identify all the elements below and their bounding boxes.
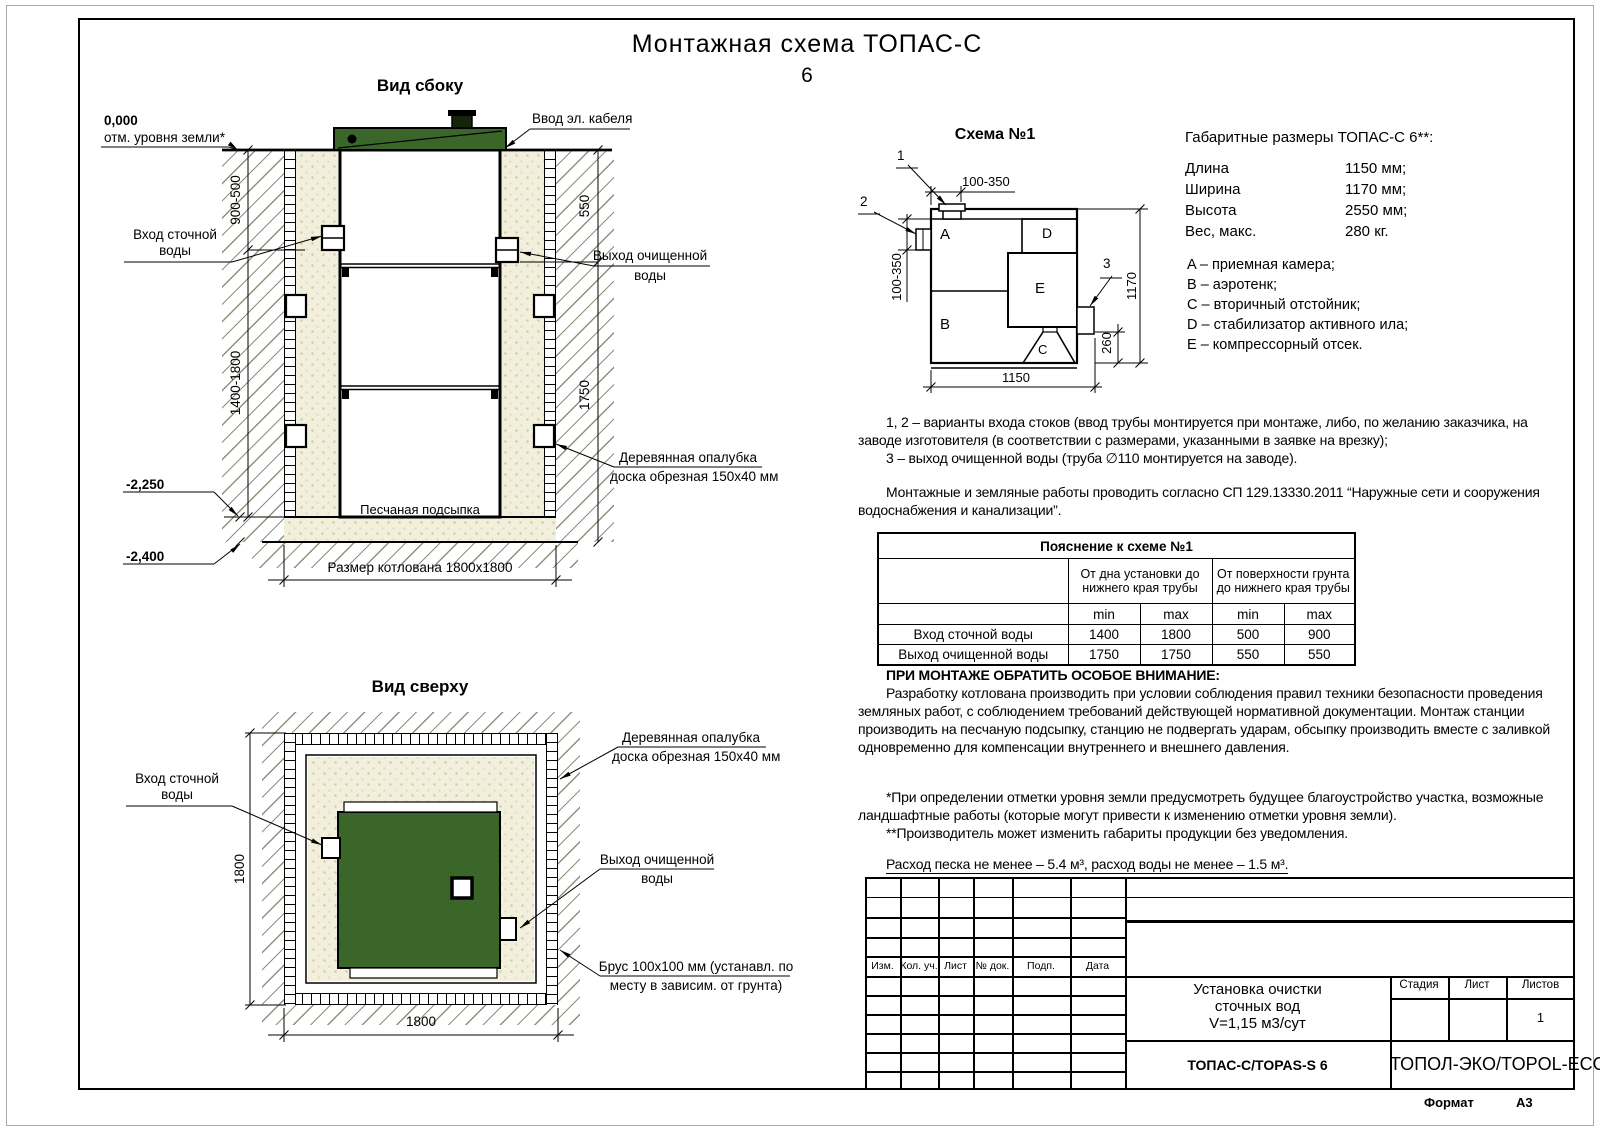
table-group1-header: От дна установки до нижнего края трубы <box>1068 559 1212 604</box>
dim-pit-height: 1800 <box>232 819 248 919</box>
doc-title-line1: Установка очистки <box>1125 981 1390 998</box>
tb-col-koluch: Кол. уч. <box>900 960 938 972</box>
row-value: 550 <box>1212 645 1284 666</box>
dim-row-value: 280 кг. <box>1345 224 1389 240</box>
row-value: 1800 <box>1140 625 1212 645</box>
sand-fill-right <box>500 150 544 517</box>
legend-item: D – стабилизатор активного ила; <box>1187 317 1408 333</box>
note-works-line1: Монтажные и земляные работы проводить со… <box>886 484 1540 500</box>
title-block-line <box>865 1071 1125 1073</box>
dim-row-label: Высота <box>1185 203 1237 219</box>
compartment-d: D <box>1042 225 1052 241</box>
compartment-a: A <box>940 227 950 243</box>
table-corner-cell <box>878 559 1068 604</box>
level-minus-2250: -2,250 <box>126 477 164 493</box>
format-value: А3 <box>1516 1095 1533 1110</box>
group1-line2: нижнего края трубы <box>1069 581 1212 595</box>
attention-line4: одновременно для компенсации внутреннего… <box>858 739 1289 755</box>
model-designation: ТОПАС-С/TOPAS-S 6 <box>1125 1057 1390 1073</box>
inlet-label-line2: воды <box>118 243 232 259</box>
group2-line2: до нижнего края трубы <box>1213 581 1355 595</box>
format-label: Формат <box>1424 1095 1474 1110</box>
title-block-line <box>973 877 975 1090</box>
side-view-title: Вид сбоку <box>320 78 520 94</box>
sand-fill-topview <box>308 757 534 981</box>
compartment-e: E <box>1035 281 1045 297</box>
schema-dim-top: 100-350 <box>962 174 1010 190</box>
row-value: 550 <box>1284 645 1355 666</box>
top-view-title: Вид сверху <box>320 679 520 695</box>
legend-item: A – приемная камера; <box>1187 257 1335 273</box>
max-header: max <box>1284 604 1355 625</box>
title-block-line <box>1390 998 1575 1000</box>
attention-line1: Разработку котлована производить при усл… <box>886 685 1543 701</box>
row-value: 1400 <box>1068 625 1140 645</box>
title-block-line <box>900 877 902 1090</box>
zero-level-mark: 0,000 <box>104 113 138 129</box>
title-block-line <box>865 917 1125 919</box>
max-header: max <box>1140 604 1212 625</box>
dim-row-label: Вес, макс. <box>1185 224 1256 240</box>
consumption-note: Расход песка не менее – 5.4 м³, расход в… <box>886 856 1288 874</box>
formwork-label-line1: Деревянная опалубка <box>610 450 766 466</box>
attention-title: ПРИ МОНТАЖЕ ОБРАТИТЬ ОСОБОЕ ВНИМАНИЕ: <box>886 667 1220 683</box>
tb-col-ndok: № док. <box>973 960 1012 972</box>
beam-label-line1: Брус 100х100 мм (устанавл. по <box>598 959 794 975</box>
top-outlet-label-line2: воды <box>598 871 716 887</box>
dim-outlet-main: 1750 <box>577 345 593 445</box>
tb-col-list: Лист <box>938 960 973 972</box>
top-inlet-label-line2: воды <box>120 787 234 803</box>
sheet-title: Монтажная схема ТОПАС-С <box>557 36 1057 52</box>
title-block-line <box>1125 920 1575 923</box>
top-formwork-label-line2: доска обрезная 150х40 мм <box>612 749 770 765</box>
legend-item: C – вторичный отстойник; <box>1187 297 1360 313</box>
schema-dim-height: 1170 <box>1124 236 1140 336</box>
table-title: Пояснение к схеме №1 <box>878 533 1355 559</box>
schema-mark-2: 2 <box>860 194 868 210</box>
sand-bed-label: Песчаная подсыпка <box>350 502 490 518</box>
dim-depth-top: 900-500 <box>228 150 244 250</box>
schema-dim-outlet: 260 <box>1099 293 1115 393</box>
legend-item: B – аэротенк; <box>1187 277 1277 293</box>
title-block-line <box>865 897 1575 898</box>
group1-line1: От дна установки до <box>1069 567 1212 581</box>
row-value: 900 <box>1284 625 1355 645</box>
row-value: 500 <box>1212 625 1284 645</box>
dim-row-value: 1170 мм; <box>1345 182 1406 198</box>
note-works-line2: водоснабжения и канализации”. <box>858 502 1061 518</box>
attention-line2: земляных работ, с соблюдением требований… <box>858 703 1524 719</box>
formwork-board-left <box>284 150 296 542</box>
stage-header: Стадия <box>1390 979 1448 991</box>
title-block-line <box>865 956 1125 958</box>
title-block-line <box>865 1033 1125 1035</box>
outlet-label-line1: Выход очищенной <box>590 248 710 264</box>
compartment-c: C <box>1038 342 1047 358</box>
formwork-board-top <box>284 733 558 745</box>
dimensions-title: Габаритные размеры ТОПАС-С 6**: <box>1185 130 1433 146</box>
sheets-count: 1 <box>1506 1010 1575 1025</box>
dim-row-value: 1150 мм; <box>1345 161 1406 177</box>
footnote-line1: *При определении отметки уровня земли пр… <box>886 789 1543 805</box>
table-group2-header: От поверхности грунта до нижнего края тр… <box>1212 559 1355 604</box>
ground-level-label: отм. уровня земли* <box>104 130 225 146</box>
schema-mark-1: 1 <box>897 148 905 164</box>
schema-dim-left: 100-350 <box>889 227 905 327</box>
note-variants-line2: заводе изготовителя (в соответствии с ра… <box>858 432 1388 448</box>
schema-mark-3: 3 <box>1103 256 1111 272</box>
title-block-line <box>1070 877 1072 1090</box>
schema-dim-length: 1150 <box>976 370 1056 386</box>
company-name: ТОПОЛ-ЭКО/TOPOL-ECO <box>1390 1054 1575 1075</box>
legend-item: E – компрессорный отсек. <box>1187 337 1363 353</box>
min-header: min <box>1212 604 1284 625</box>
row-name: Выход очищенной воды <box>878 645 1068 666</box>
title-block-line <box>1012 877 1014 1090</box>
dim-pit-width: 1800 <box>381 1014 461 1030</box>
tb-col-izm: Изм. <box>865 960 900 972</box>
sand-bed <box>284 517 556 542</box>
beam-label-line2: месту в зависим. от грунта) <box>598 978 794 994</box>
title-block-line <box>938 877 940 1090</box>
inlet-label-line1: Вход сточной <box>118 227 232 243</box>
title-block-line <box>865 976 1575 978</box>
formwork-board-left-top <box>284 733 296 1005</box>
group2-line1: От поверхности грунта <box>1213 567 1355 581</box>
table-row: Выход очищенной воды 1750 1750 550 550 <box>878 645 1355 666</box>
compartment-b: B <box>940 317 950 333</box>
footnote-line3: **Производитель может изменить габариты … <box>886 825 1348 841</box>
dim-depth-main: 1400-1800 <box>228 333 244 433</box>
row-name: Вход сточной воды <box>878 625 1068 645</box>
dim-outlet-top: 550 <box>577 156 593 256</box>
level-minus-2400: -2,400 <box>126 549 164 565</box>
sheet-title-number: 6 <box>557 68 1057 84</box>
drawing-sheet: Монтажная схема ТОПАС-С 6 Вид сбоку 0,00… <box>0 0 1600 1131</box>
note-variants-line3: 3 – выход очищенной воды (труба ∅110 мон… <box>886 450 1297 466</box>
dim-row-label: Длина <box>1185 161 1229 177</box>
schema-title: Схема №1 <box>935 127 1055 143</box>
row-value: 1750 <box>1140 645 1212 666</box>
top-outlet-label-line1: Выход очищенной <box>598 852 716 868</box>
title-block-line <box>1125 1040 1575 1042</box>
sheets-header: Листов <box>1506 979 1575 991</box>
row-value: 1750 <box>1068 645 1140 666</box>
title-block-line <box>865 1052 1125 1054</box>
doc-title-line3: V=1,15 м3/сут <box>1125 1015 1390 1032</box>
sand-fill-left <box>296 150 340 517</box>
doc-title-line2: сточных вод <box>1125 998 1390 1015</box>
footnote-line2: ландшафтные работы (которые могут привес… <box>858 807 1397 823</box>
formwork-board-bottom <box>284 993 558 1005</box>
explanation-table: Пояснение к схеме №1 От дна установки до… <box>877 532 1356 666</box>
table-row: Вход сточной воды 1400 1800 500 900 <box>878 625 1355 645</box>
tb-col-data: Дата <box>1070 960 1125 972</box>
outlet-label-line2: воды <box>590 268 710 284</box>
title-block-line <box>865 995 1125 997</box>
cable-entry-label: Ввод эл. кабеля <box>532 111 632 127</box>
top-formwork-label-line1: Деревянная опалубка <box>612 730 770 746</box>
title-block-line <box>865 937 1125 939</box>
top-inlet-label-line1: Вход сточной <box>120 771 234 787</box>
attention-line3: производить на песчаную подсыпку, станци… <box>858 721 1550 737</box>
sheet-header: Лист <box>1448 979 1506 991</box>
table-empty-cell <box>878 604 1068 625</box>
note-variants-line1: 1, 2 – варианты входа стоков (ввод трубы… <box>886 414 1528 430</box>
title-block-line <box>865 1014 1125 1016</box>
formwork-board-right <box>544 150 556 542</box>
tb-col-podp: Подп. <box>1012 960 1070 972</box>
formwork-board-right-top <box>546 733 558 1005</box>
dim-row-label: Ширина <box>1185 182 1240 198</box>
dim-row-value: 2550 мм; <box>1345 203 1407 219</box>
formwork-label-line2: доска обрезная 150х40 мм <box>610 469 766 485</box>
pit-size-label: Размер котлована 1800х1800 <box>308 560 532 576</box>
min-header: min <box>1068 604 1140 625</box>
